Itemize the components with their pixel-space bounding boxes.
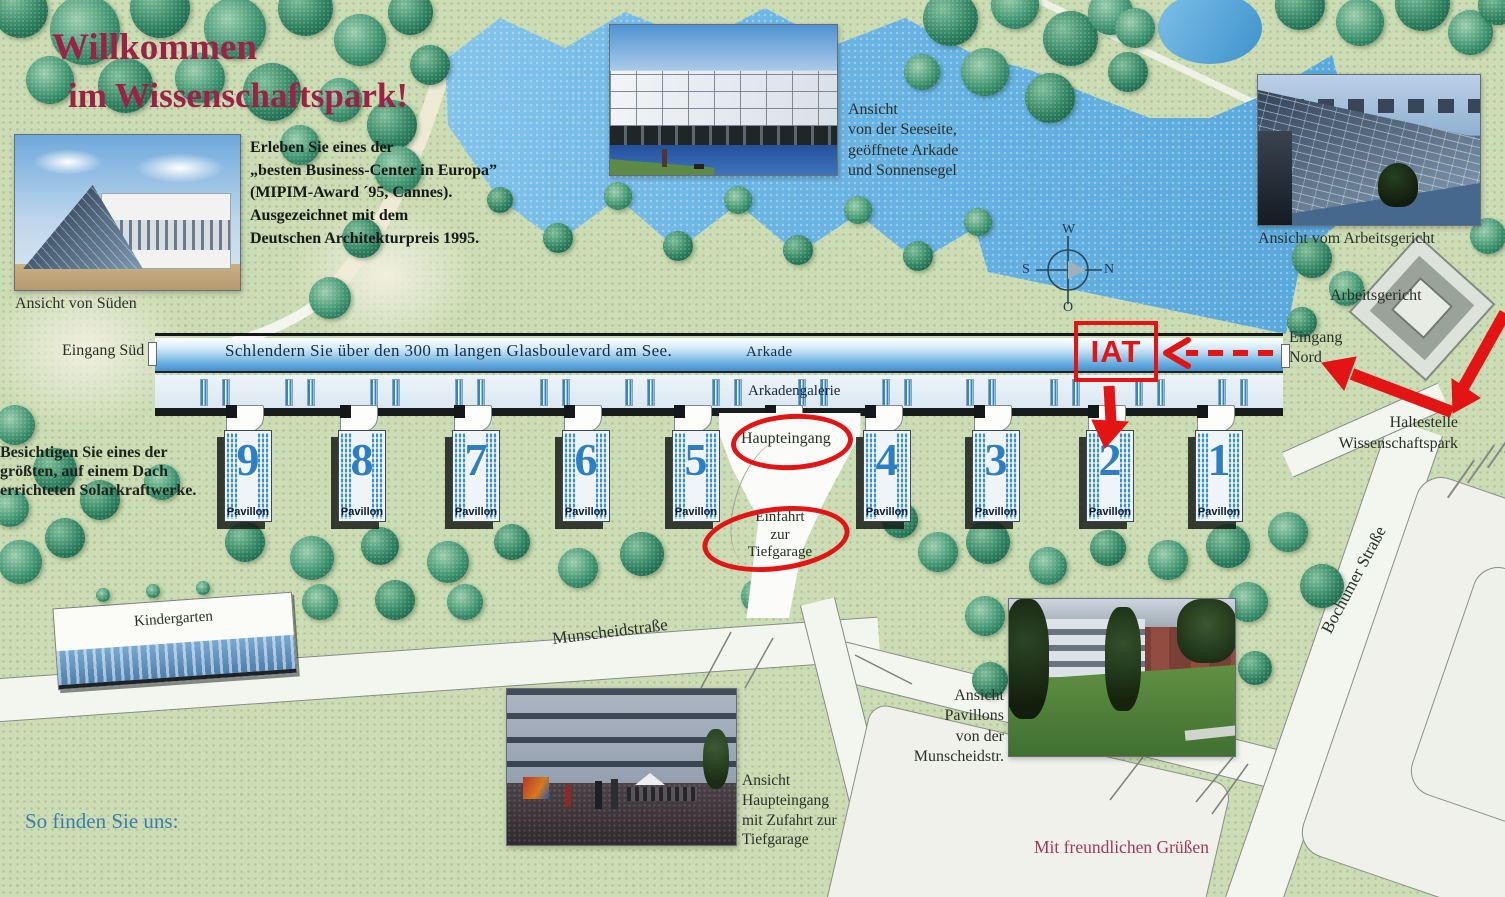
photo-tree xyxy=(1008,599,1049,719)
tree-icon xyxy=(620,532,664,576)
photo-person xyxy=(565,785,571,807)
pavilion-number: 3 xyxy=(973,433,1019,486)
gallery-column xyxy=(1050,379,1058,406)
small-tree-icon xyxy=(196,581,210,595)
pavilion-label: Pavillon xyxy=(973,506,1019,518)
tree-icon xyxy=(904,54,940,90)
caption-sued: Ansicht von Süden xyxy=(15,294,137,314)
greeting-text: Mit freundlichen Grüßen xyxy=(1034,837,1209,858)
iat-label: IAT xyxy=(1091,334,1142,370)
pavilion-number: 8 xyxy=(339,433,385,486)
pavilion-number: 1 xyxy=(1196,433,1242,486)
find-us-text: So finden Sie uns: xyxy=(25,809,178,834)
pavilion-number: 5 xyxy=(673,433,719,486)
tree-icon xyxy=(558,548,598,588)
eingang-sued-label: Eingang Süd xyxy=(62,342,146,360)
tree-icon xyxy=(1336,0,1384,46)
tree-icon xyxy=(309,277,351,319)
small-tree-icon xyxy=(96,588,110,602)
pavilion-label: Pavillon xyxy=(864,506,910,518)
pavilion-6: 6Pavillon xyxy=(562,430,610,522)
tree-icon xyxy=(410,45,450,85)
gallery-column xyxy=(477,379,485,406)
pavilion-label: Pavillon xyxy=(339,506,385,518)
photo-tree xyxy=(1177,599,1236,663)
photo-ansicht-von-sueden xyxy=(14,134,241,291)
tree-icon xyxy=(302,584,338,620)
pavilion-label: Pavillon xyxy=(563,506,609,518)
pavilion-label: Pavillon xyxy=(225,506,271,518)
pavilion-number: 6 xyxy=(563,433,609,486)
iat-highlight-box: IAT xyxy=(1074,321,1158,382)
gallery-column xyxy=(988,379,996,406)
arbeitsgericht-label: Arbeitsgericht xyxy=(1330,287,1422,305)
tree-icon xyxy=(903,241,933,271)
connector-stub xyxy=(1197,405,1235,432)
gallery-column xyxy=(1218,379,1226,406)
eingang-nord-label: Eingang Nord xyxy=(1289,328,1342,368)
photo-tree xyxy=(1378,163,1418,207)
arbeitsgericht-mid xyxy=(1370,256,1475,361)
connector-stub xyxy=(865,405,903,432)
tree-icon xyxy=(45,518,85,558)
pavilion-number: 7 xyxy=(453,433,499,486)
photo-dog xyxy=(694,164,704,169)
tree-icon xyxy=(0,540,42,584)
tree-icon xyxy=(663,231,693,261)
tree-icon xyxy=(494,524,530,560)
gallery-column xyxy=(1157,379,1165,406)
photo-person xyxy=(611,779,618,809)
caption-seeseite: Ansicht von der Seeseite, geöffnete Arka… xyxy=(848,100,958,182)
tree-icon xyxy=(1025,73,1075,123)
photo-arbeitsgericht xyxy=(1257,74,1481,226)
photo-cloud xyxy=(135,153,225,183)
tree-icon xyxy=(375,580,415,620)
tree-icon xyxy=(1238,651,1272,685)
gallery-column xyxy=(307,379,315,406)
pavilion-4: 4Pavillon xyxy=(863,430,911,522)
pavilion-label: Pavillon xyxy=(673,506,719,518)
compass-n: N xyxy=(1104,262,1114,278)
photo-pavillons xyxy=(1008,598,1236,757)
tree-icon xyxy=(966,520,1010,564)
page-title-line1: Willkommen xyxy=(52,26,257,69)
photo-glass-facade xyxy=(610,71,837,126)
photo-building-face xyxy=(1258,131,1292,226)
pavilion-2: 2Pavillon xyxy=(1086,430,1134,522)
gallery-column xyxy=(712,379,720,406)
gallery-column xyxy=(562,379,570,406)
tree-icon xyxy=(1148,540,1188,580)
tree-icon xyxy=(724,186,752,214)
compass-w: W xyxy=(1062,222,1075,238)
tree-icon xyxy=(783,235,813,265)
compass-rose: W N O S xyxy=(1022,230,1114,314)
gallery-column xyxy=(647,379,655,406)
gallery-column xyxy=(392,379,400,406)
gallery-column xyxy=(1072,379,1080,406)
gallery-column xyxy=(370,379,378,406)
connector-stub xyxy=(564,405,602,432)
caption-haupteingang: Ansicht Haupteingang mit Zufahrt zur Tie… xyxy=(742,771,837,850)
gallery-column xyxy=(734,379,742,406)
tree-icon xyxy=(225,522,265,562)
intro-text: Erleben Sie eines der „besten Business-C… xyxy=(250,137,520,251)
arkadengalerie-label: Arkadengalerie xyxy=(748,383,840,400)
pavilion-number: 9 xyxy=(225,433,271,486)
photo-banner xyxy=(523,777,549,799)
tree-icon xyxy=(361,527,399,565)
photo-seeseite xyxy=(609,24,838,176)
tree-icon xyxy=(1268,512,1308,552)
gallery-column xyxy=(882,379,890,406)
compass-s: S xyxy=(1022,262,1030,278)
tree-icon xyxy=(543,223,573,253)
page-title-line2: im Wissenschaftspark! xyxy=(68,76,408,116)
pavilion-8: 8Pavillon xyxy=(338,430,386,522)
tree-icon xyxy=(1108,52,1148,92)
tree-icon xyxy=(427,541,469,583)
tree-icon xyxy=(918,532,958,572)
tree-icon xyxy=(1090,530,1126,566)
tree-icon xyxy=(1115,8,1155,48)
wissenschaftspark-map: Kindergarten Schlendern Sie über den 300… xyxy=(0,0,1505,897)
gallery-column xyxy=(1135,379,1143,406)
gallery-column xyxy=(222,379,230,406)
gallery-column xyxy=(200,379,208,406)
connector-stub xyxy=(974,405,1012,432)
tree-icon xyxy=(1206,524,1250,568)
connector-stub xyxy=(454,405,492,432)
photo-glass-rows xyxy=(507,689,736,785)
haltestelle-label: Haltestelle Wissenschaftspark xyxy=(1280,413,1458,455)
caption-pavillons: Ansicht Pavillons von der Munscheidstr. xyxy=(898,686,1004,768)
photo-person xyxy=(595,781,602,809)
connector-stub xyxy=(674,405,712,432)
gallery-column xyxy=(1240,379,1248,406)
gallery-column xyxy=(966,379,974,406)
tree-icon xyxy=(844,196,872,224)
tree-icon xyxy=(290,536,334,580)
pavilion-number: 2 xyxy=(1087,433,1133,486)
tree-icon xyxy=(447,584,483,620)
kindergarten-building: Kindergarten xyxy=(52,592,297,691)
pavilion-9: 9Pavillon xyxy=(224,430,272,522)
photo-haupteingang xyxy=(506,688,737,846)
tree-icon xyxy=(334,14,386,66)
connector-stub xyxy=(1088,405,1126,432)
boulevard-text: Schlendern Sie über den 300 m langen Gla… xyxy=(225,341,672,361)
pavilion-3: 3Pavillon xyxy=(972,430,1020,522)
pavilion-7: 7Pavillon xyxy=(452,430,500,522)
tree-icon xyxy=(1029,547,1067,585)
arbeitsgericht-building xyxy=(1352,238,1492,378)
tree-icon xyxy=(964,208,992,236)
small-tree-icon xyxy=(146,584,160,598)
gallery-column xyxy=(904,379,912,406)
photo-tree xyxy=(1105,607,1141,711)
gallery-column xyxy=(540,379,548,406)
photo-tree xyxy=(703,729,729,789)
kindergarten-label: Kindergarten xyxy=(54,603,293,637)
arkade-label: Arkade xyxy=(746,344,793,361)
compass-o: O xyxy=(1063,300,1073,316)
caption-arbeitsgericht: Ansicht vom Arbeitsgericht xyxy=(1258,229,1435,249)
solar-text: Besichtigen Sie eines der größten, auf e… xyxy=(0,443,220,501)
pavilion-label: Pavillon xyxy=(1196,506,1242,518)
photo-person xyxy=(662,149,667,167)
tree-icon xyxy=(965,596,1005,636)
arbeitsgericht-outer xyxy=(1349,235,1496,382)
photo-cloud xyxy=(33,149,103,175)
pavilion-label: Pavillon xyxy=(1087,506,1133,518)
tree-icon xyxy=(961,48,1009,96)
pavilion-label: Pavillon xyxy=(453,506,499,518)
connector-stub xyxy=(340,405,378,432)
pavilion-5: 5Pavillon xyxy=(672,430,720,522)
pavilion-number: 4 xyxy=(864,433,910,486)
tree-icon xyxy=(604,182,632,210)
connector-stub xyxy=(226,405,264,432)
eingang-sued-door xyxy=(148,342,157,366)
photo-crowd xyxy=(627,787,697,801)
gallery-column xyxy=(455,379,463,406)
gallery-column xyxy=(625,379,633,406)
pavilion-1: 1Pavillon xyxy=(1195,430,1243,522)
gallery-column xyxy=(285,379,293,406)
